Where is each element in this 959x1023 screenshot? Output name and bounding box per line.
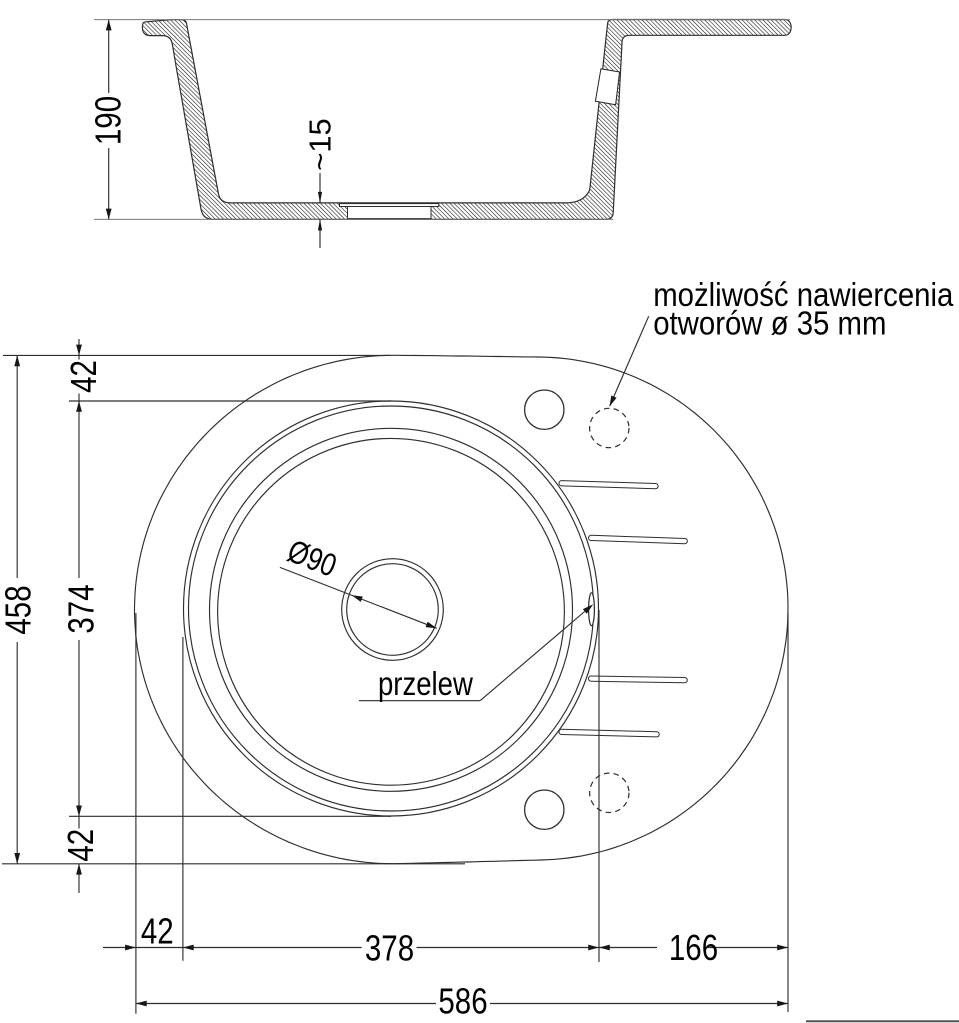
svg-text:378: 378 xyxy=(365,928,414,968)
svg-text:190: 190 xyxy=(88,96,128,145)
svg-text:458: 458 xyxy=(0,585,38,634)
svg-text:374: 374 xyxy=(61,584,101,633)
svg-text:otworów ø 35 mm: otworów ø 35 mm xyxy=(653,305,886,342)
svg-text:42: 42 xyxy=(141,911,174,951)
svg-text:166: 166 xyxy=(669,927,718,967)
svg-text:42: 42 xyxy=(63,360,103,393)
svg-text:przelew: przelew xyxy=(378,666,474,703)
svg-text:586: 586 xyxy=(438,981,487,1021)
svg-text:~15: ~15 xyxy=(303,118,338,171)
svg-text:42: 42 xyxy=(60,829,100,862)
